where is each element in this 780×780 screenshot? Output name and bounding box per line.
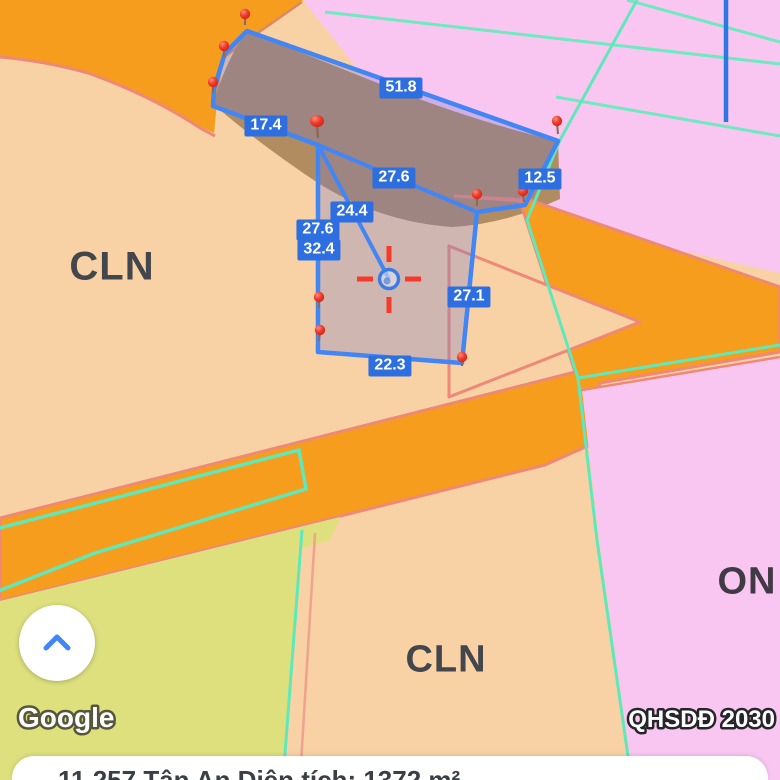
measurement-label: 22.3 <box>368 356 411 377</box>
google-logo: Google <box>18 702 114 733</box>
measurement-label: 12.5 <box>518 169 561 190</box>
parcel-info-sheet[interactable]: 11.257 Tân An Diện tích: 1372 m² <box>12 756 768 780</box>
measurement-label: 17.4 <box>244 116 287 137</box>
measurement-label: 24.4 <box>330 202 373 223</box>
collapse-panel-button[interactable] <box>19 605 95 681</box>
measurement-label: 27.6 <box>372 168 415 189</box>
watermark-qhsdd: QHSDĐ 2030 <box>628 706 775 733</box>
parcel-info-text: 11.257 Tân An Diện tích: 1372 m² <box>58 765 768 780</box>
zone-label-on-right: ON <box>718 561 777 604</box>
measurement-label: 27.6 <box>296 220 339 241</box>
map-layers: Google QHSDĐ 2030 <box>0 0 780 780</box>
zone-label-cln-bottom: CLN <box>405 639 486 682</box>
chevron-up-icon <box>40 632 74 654</box>
measurement-label: 32.4 <box>297 240 340 261</box>
zone-label-cln-left: CLN <box>69 245 154 290</box>
measurement-label: 27.1 <box>447 287 490 308</box>
map-canvas[interactable]: Google QHSDĐ 2030 CLN CLN ON 51.8 17.4 2… <box>0 0 780 780</box>
measurement-label: 51.8 <box>379 78 422 99</box>
